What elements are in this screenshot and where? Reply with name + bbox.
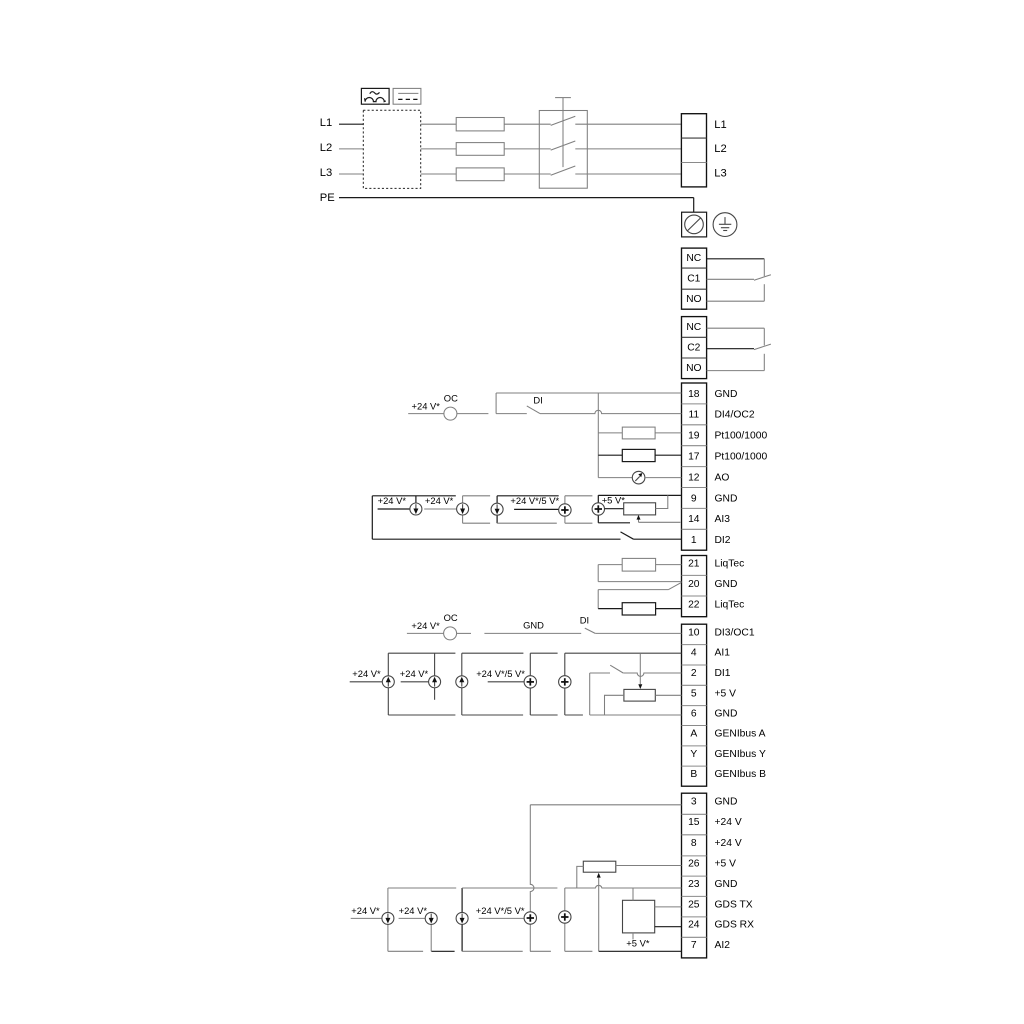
svg-text:Pt100/1000: Pt100/1000 <box>715 431 768 442</box>
svg-text:NC: NC <box>686 253 701 264</box>
svg-text:B: B <box>690 769 697 780</box>
svg-text:8: 8 <box>691 838 697 849</box>
svg-text:11: 11 <box>688 410 699 421</box>
svg-text:+24 V*: +24 V* <box>378 495 407 506</box>
svg-text:+24 V*: +24 V* <box>400 668 429 679</box>
svg-text:5: 5 <box>691 688 697 699</box>
svg-text:+24 V*: +24 V* <box>352 668 381 679</box>
svg-text:GENIbus A: GENIbus A <box>715 729 766 740</box>
svg-text:PE: PE <box>320 192 335 204</box>
svg-text:NC: NC <box>686 322 701 333</box>
svg-text:GENIbus B: GENIbus B <box>715 769 767 780</box>
svg-text:23: 23 <box>688 879 700 890</box>
svg-text:L2: L2 <box>714 143 726 155</box>
svg-text:19: 19 <box>688 431 700 442</box>
svg-text:10: 10 <box>688 627 700 638</box>
svg-text:2: 2 <box>691 668 697 679</box>
svg-text:20: 20 <box>688 579 700 590</box>
svg-text:+24 V*: +24 V* <box>399 905 428 916</box>
svg-text:+24 V*: +24 V* <box>351 905 380 916</box>
svg-text:Pt100/1000: Pt100/1000 <box>715 451 768 462</box>
svg-text:21: 21 <box>688 559 700 570</box>
svg-text:GENIbus Y: GENIbus Y <box>715 749 766 760</box>
svg-text:DI4/OC2: DI4/OC2 <box>715 410 755 421</box>
svg-text:AI3: AI3 <box>715 514 731 525</box>
svg-text:L2: L2 <box>320 142 332 154</box>
svg-text:15: 15 <box>688 817 700 828</box>
svg-text:3: 3 <box>691 796 697 807</box>
svg-text:L1: L1 <box>320 117 332 129</box>
svg-text:22: 22 <box>688 599 700 610</box>
svg-text:DI3/OC1: DI3/OC1 <box>715 627 755 638</box>
svg-text:+24 V*: +24 V* <box>425 495 454 506</box>
svg-text:L3: L3 <box>320 167 332 179</box>
svg-text:NO: NO <box>686 294 701 305</box>
svg-text:26: 26 <box>688 859 700 870</box>
svg-text:GND: GND <box>715 708 738 719</box>
svg-text:9: 9 <box>691 493 697 504</box>
svg-text:GND: GND <box>715 879 738 890</box>
svg-text:14: 14 <box>688 514 700 525</box>
svg-text:GDS RX: GDS RX <box>715 920 755 931</box>
svg-text:OC: OC <box>444 612 458 623</box>
svg-text:GND: GND <box>715 389 738 400</box>
svg-text:DI1: DI1 <box>715 668 731 679</box>
svg-text:+24 V*/5 V*: +24 V*/5 V* <box>510 495 559 506</box>
svg-text:6: 6 <box>691 708 697 719</box>
svg-text:+24 V*/5 V*: +24 V*/5 V* <box>476 668 525 679</box>
svg-text:12: 12 <box>688 472 700 483</box>
svg-text:L3: L3 <box>714 168 726 180</box>
svg-text:AI2: AI2 <box>715 940 731 951</box>
svg-text:DI: DI <box>533 395 542 406</box>
svg-text:GDS TX: GDS TX <box>715 899 753 910</box>
svg-text:7: 7 <box>691 940 697 951</box>
svg-text:Y: Y <box>690 749 697 760</box>
svg-text:+24 V*: +24 V* <box>411 620 440 631</box>
svg-text:+24 V*: +24 V* <box>412 400 441 411</box>
svg-text:GND: GND <box>715 579 738 590</box>
svg-text:C2: C2 <box>687 343 700 354</box>
svg-text:+5 V: +5 V <box>715 688 737 699</box>
svg-text:4: 4 <box>691 648 697 659</box>
svg-text:18: 18 <box>688 389 700 400</box>
svg-text:LiqTec: LiqTec <box>715 599 745 610</box>
svg-text:A: A <box>690 729 697 740</box>
svg-text:DI: DI <box>580 614 589 625</box>
svg-text:24: 24 <box>688 920 700 931</box>
svg-text:AI1: AI1 <box>715 648 731 659</box>
svg-text:1: 1 <box>691 535 697 546</box>
svg-text:+5 V*: +5 V* <box>602 495 626 506</box>
svg-text:GND: GND <box>715 493 738 504</box>
svg-text:+24 V*/5 V*: +24 V*/5 V* <box>476 905 525 916</box>
svg-text:25: 25 <box>688 899 700 910</box>
svg-text:+5 V: +5 V <box>715 859 737 870</box>
svg-text:OC: OC <box>444 392 458 403</box>
svg-text:GND: GND <box>523 619 544 630</box>
svg-text:C1: C1 <box>687 274 700 285</box>
svg-text:+24 V: +24 V <box>715 838 742 849</box>
svg-text:GND: GND <box>715 796 738 807</box>
svg-text:17: 17 <box>688 451 700 462</box>
svg-text:+24 V: +24 V <box>715 817 742 828</box>
svg-text:AO: AO <box>715 472 730 483</box>
svg-text:LiqTec: LiqTec <box>715 559 745 570</box>
svg-text:NO: NO <box>686 363 701 374</box>
svg-text:DI2: DI2 <box>715 535 731 546</box>
svg-text:L1: L1 <box>714 119 726 131</box>
svg-text:+5 V*: +5 V* <box>626 938 650 949</box>
